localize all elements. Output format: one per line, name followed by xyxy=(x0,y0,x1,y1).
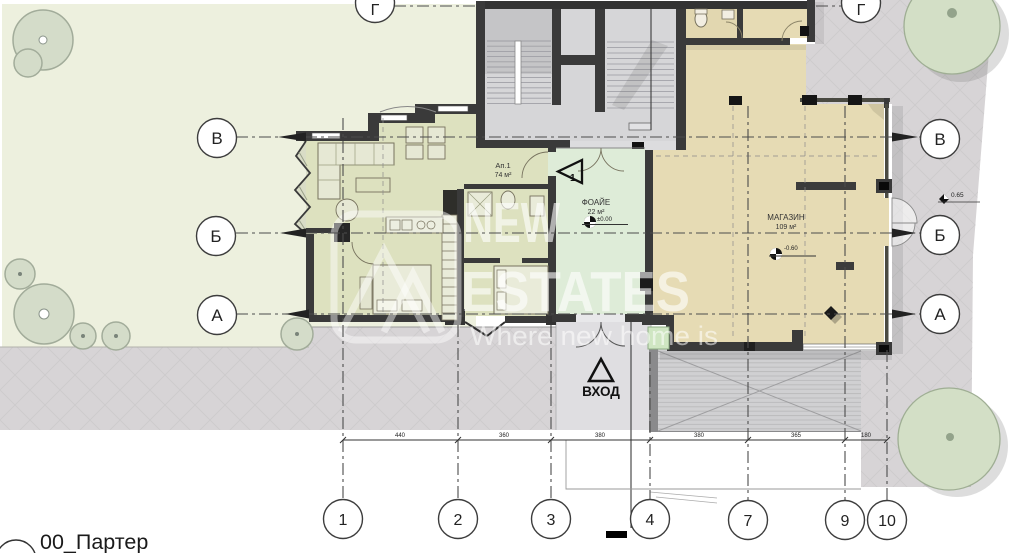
svg-text:В: В xyxy=(211,129,222,148)
svg-text:4: 4 xyxy=(646,512,655,529)
svg-text:440: 440 xyxy=(395,433,406,439)
svg-text:360: 360 xyxy=(499,433,510,439)
svg-text:-0.60: -0.60 xyxy=(784,246,798,252)
svg-text:74 м²: 74 м² xyxy=(495,172,513,179)
svg-text:180: 180 xyxy=(861,433,872,439)
svg-text:Г: Г xyxy=(857,2,866,19)
svg-text:В: В xyxy=(934,130,945,149)
svg-text:А: А xyxy=(211,306,223,325)
svg-text:380: 380 xyxy=(595,433,606,439)
svg-text:ФОАЙЕ: ФОАЙЕ xyxy=(582,198,611,207)
svg-text:Ап.1: Ап.1 xyxy=(495,161,510,170)
svg-text:А: А xyxy=(934,305,946,324)
svg-text:МАГАЗИН: МАГАЗИН xyxy=(767,213,805,222)
svg-text:Б: Б xyxy=(210,227,221,246)
svg-text:380: 380 xyxy=(694,433,705,439)
svg-text:10: 10 xyxy=(878,513,896,530)
svg-text:00_Партер: 00_Партер xyxy=(40,530,148,553)
svg-text:0.65: 0.65 xyxy=(951,192,964,199)
svg-text:3: 3 xyxy=(547,512,556,529)
svg-text:Б: Б xyxy=(934,226,945,245)
svg-text:22 м²: 22 м² xyxy=(588,209,606,216)
svg-text:9: 9 xyxy=(841,513,850,530)
svg-text:7: 7 xyxy=(744,513,753,530)
svg-text:365: 365 xyxy=(791,433,802,439)
svg-text:1: 1 xyxy=(339,512,348,529)
svg-text:Г: Г xyxy=(371,2,380,19)
svg-text:NEW: NEW xyxy=(463,191,560,255)
svg-text:109 м²: 109 м² xyxy=(776,224,797,231)
svg-text:Where new home is: Where new home is xyxy=(470,321,718,351)
svg-text:±0.00: ±0.00 xyxy=(597,217,613,223)
svg-text:ВХОД: ВХОД xyxy=(582,384,620,399)
svg-text:1: 1 xyxy=(570,173,576,184)
svg-text:2: 2 xyxy=(454,512,463,529)
